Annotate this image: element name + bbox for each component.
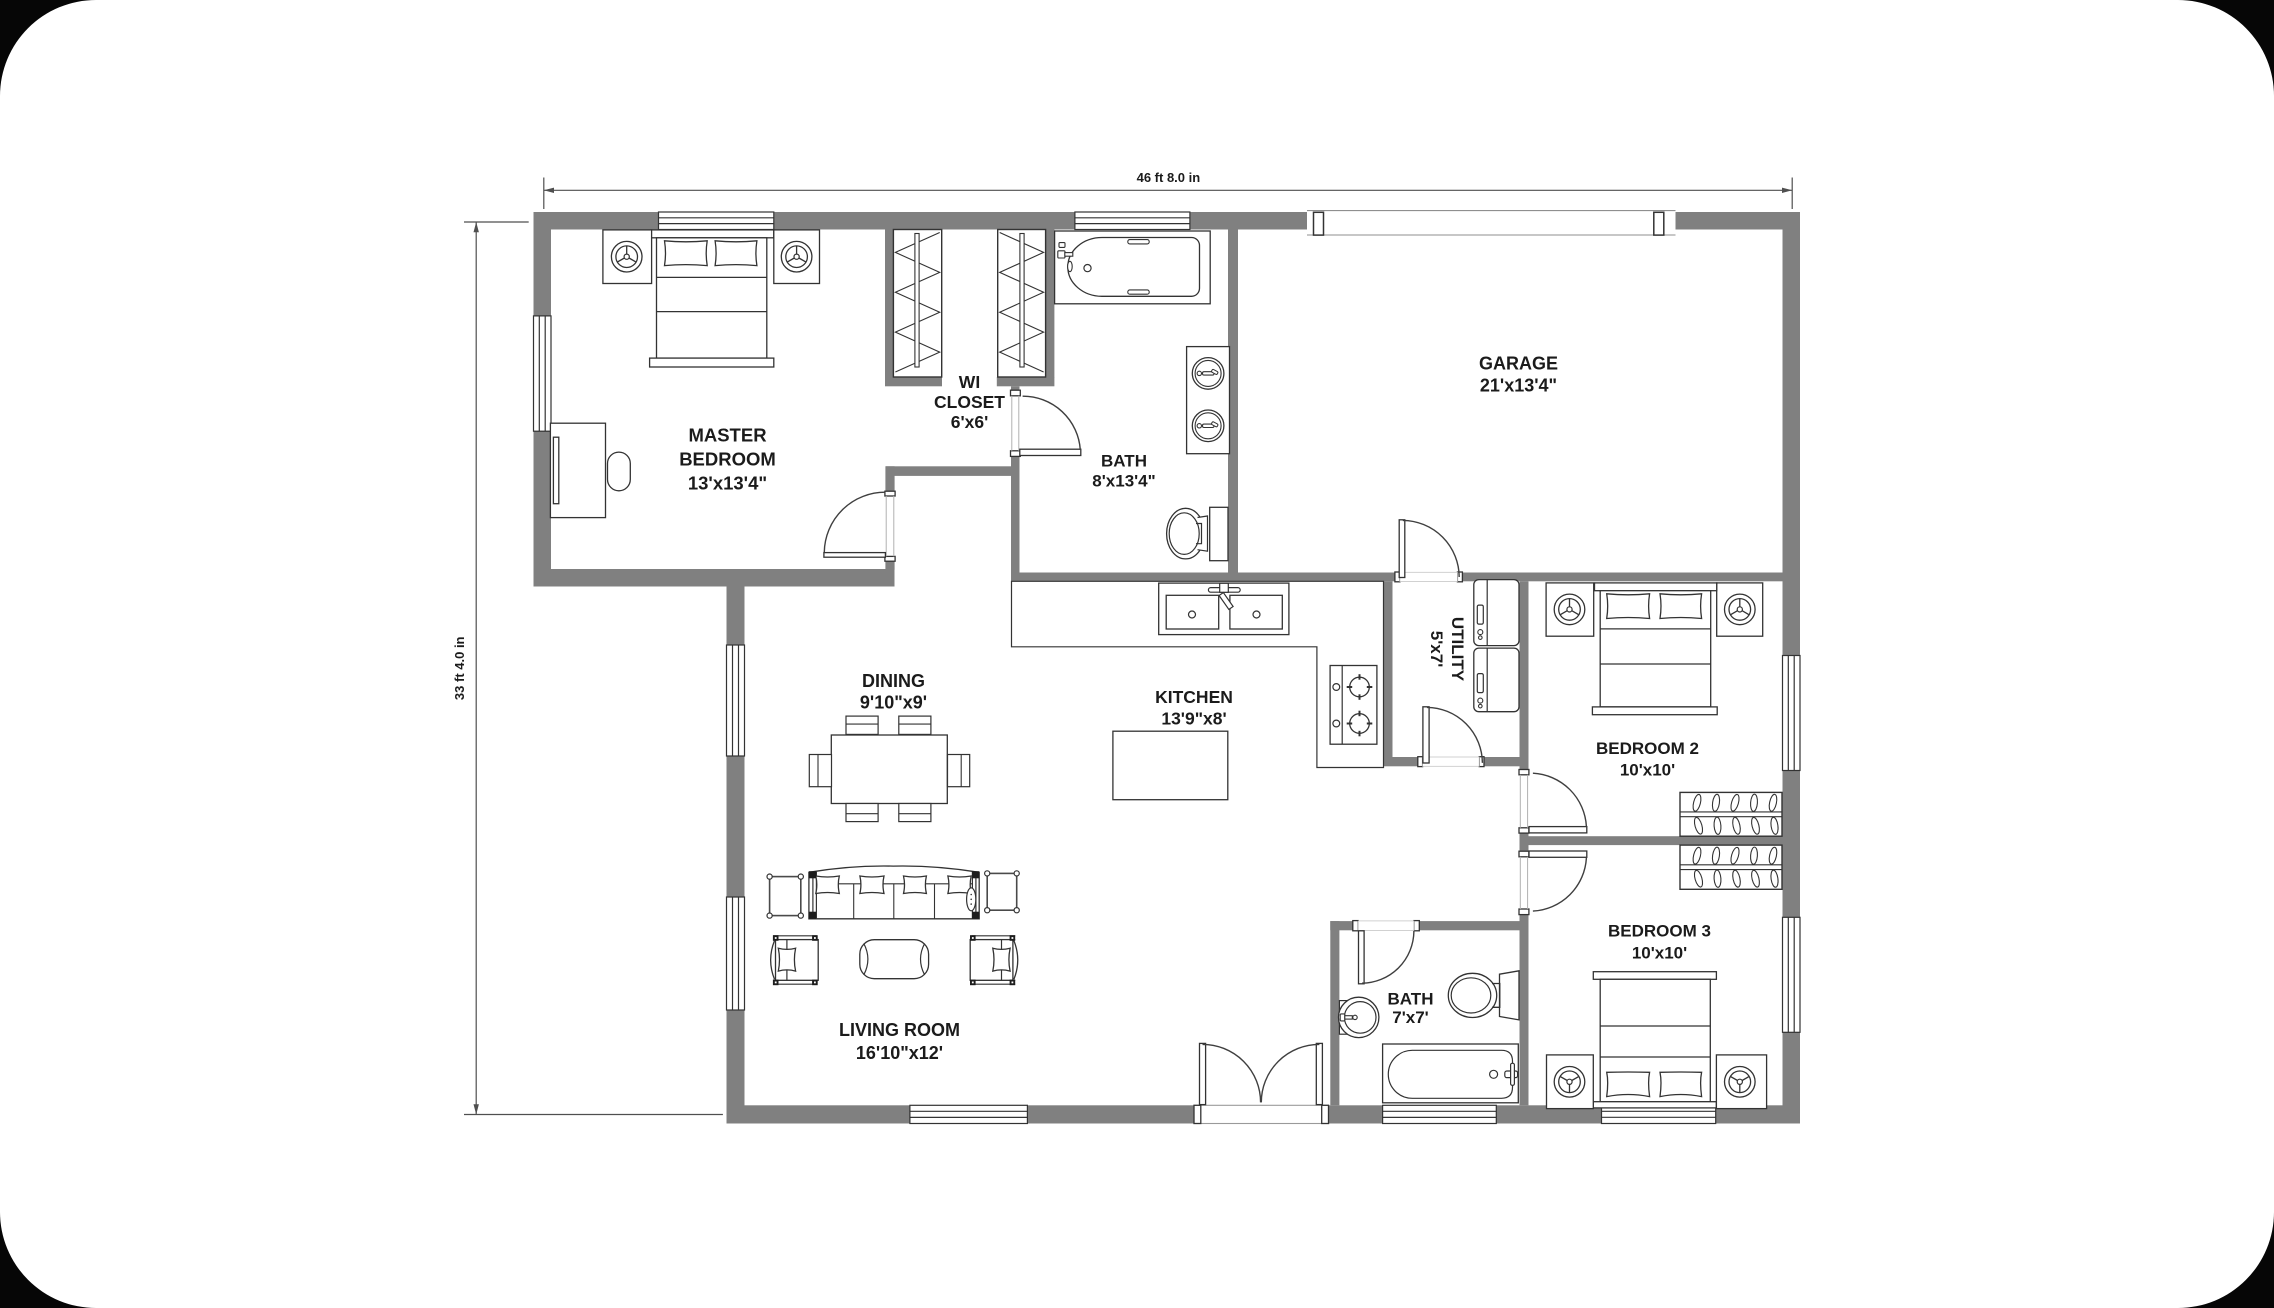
svg-text:10'x10': 10'x10': [1632, 944, 1687, 963]
svg-text:GARAGE: GARAGE: [1479, 354, 1558, 374]
svg-text:5'x7': 5'x7': [1427, 631, 1446, 667]
svg-text:WI: WI: [959, 372, 980, 392]
svg-text:DINING: DINING: [862, 671, 925, 691]
svg-text:46 ft 8.0 in: 46 ft 8.0 in: [1137, 170, 1201, 185]
svg-text:7'x7': 7'x7': [1392, 1008, 1428, 1027]
svg-text:MASTER: MASTER: [688, 425, 766, 446]
svg-text:CLOSET: CLOSET: [934, 392, 1005, 412]
svg-text:21'x13'4": 21'x13'4": [1480, 376, 1557, 396]
svg-text:13'x13'4": 13'x13'4": [688, 473, 767, 494]
svg-text:13'9"x8': 13'9"x8': [1161, 709, 1226, 729]
svg-text:8'x13'4": 8'x13'4": [1092, 472, 1155, 491]
svg-text:9'10"x9': 9'10"x9': [860, 693, 927, 713]
svg-text:LIVING ROOM: LIVING ROOM: [839, 1020, 960, 1040]
svg-text:33 ft 4.0 in: 33 ft 4.0 in: [452, 636, 467, 700]
svg-text:BATH: BATH: [1101, 452, 1147, 471]
svg-text:6'x6': 6'x6': [951, 412, 989, 432]
svg-text:BATH: BATH: [1388, 990, 1434, 1009]
svg-text:BEDROOM: BEDROOM: [679, 449, 776, 470]
svg-text:16'10"x12': 16'10"x12': [856, 1043, 943, 1063]
svg-text:BEDROOM 3: BEDROOM 3: [1608, 922, 1711, 941]
svg-text:BEDROOM 2: BEDROOM 2: [1596, 739, 1699, 758]
svg-text:KITCHEN: KITCHEN: [1155, 687, 1233, 707]
svg-text:10'x10': 10'x10': [1620, 761, 1675, 780]
svg-text:UTILITY: UTILITY: [1448, 617, 1467, 682]
